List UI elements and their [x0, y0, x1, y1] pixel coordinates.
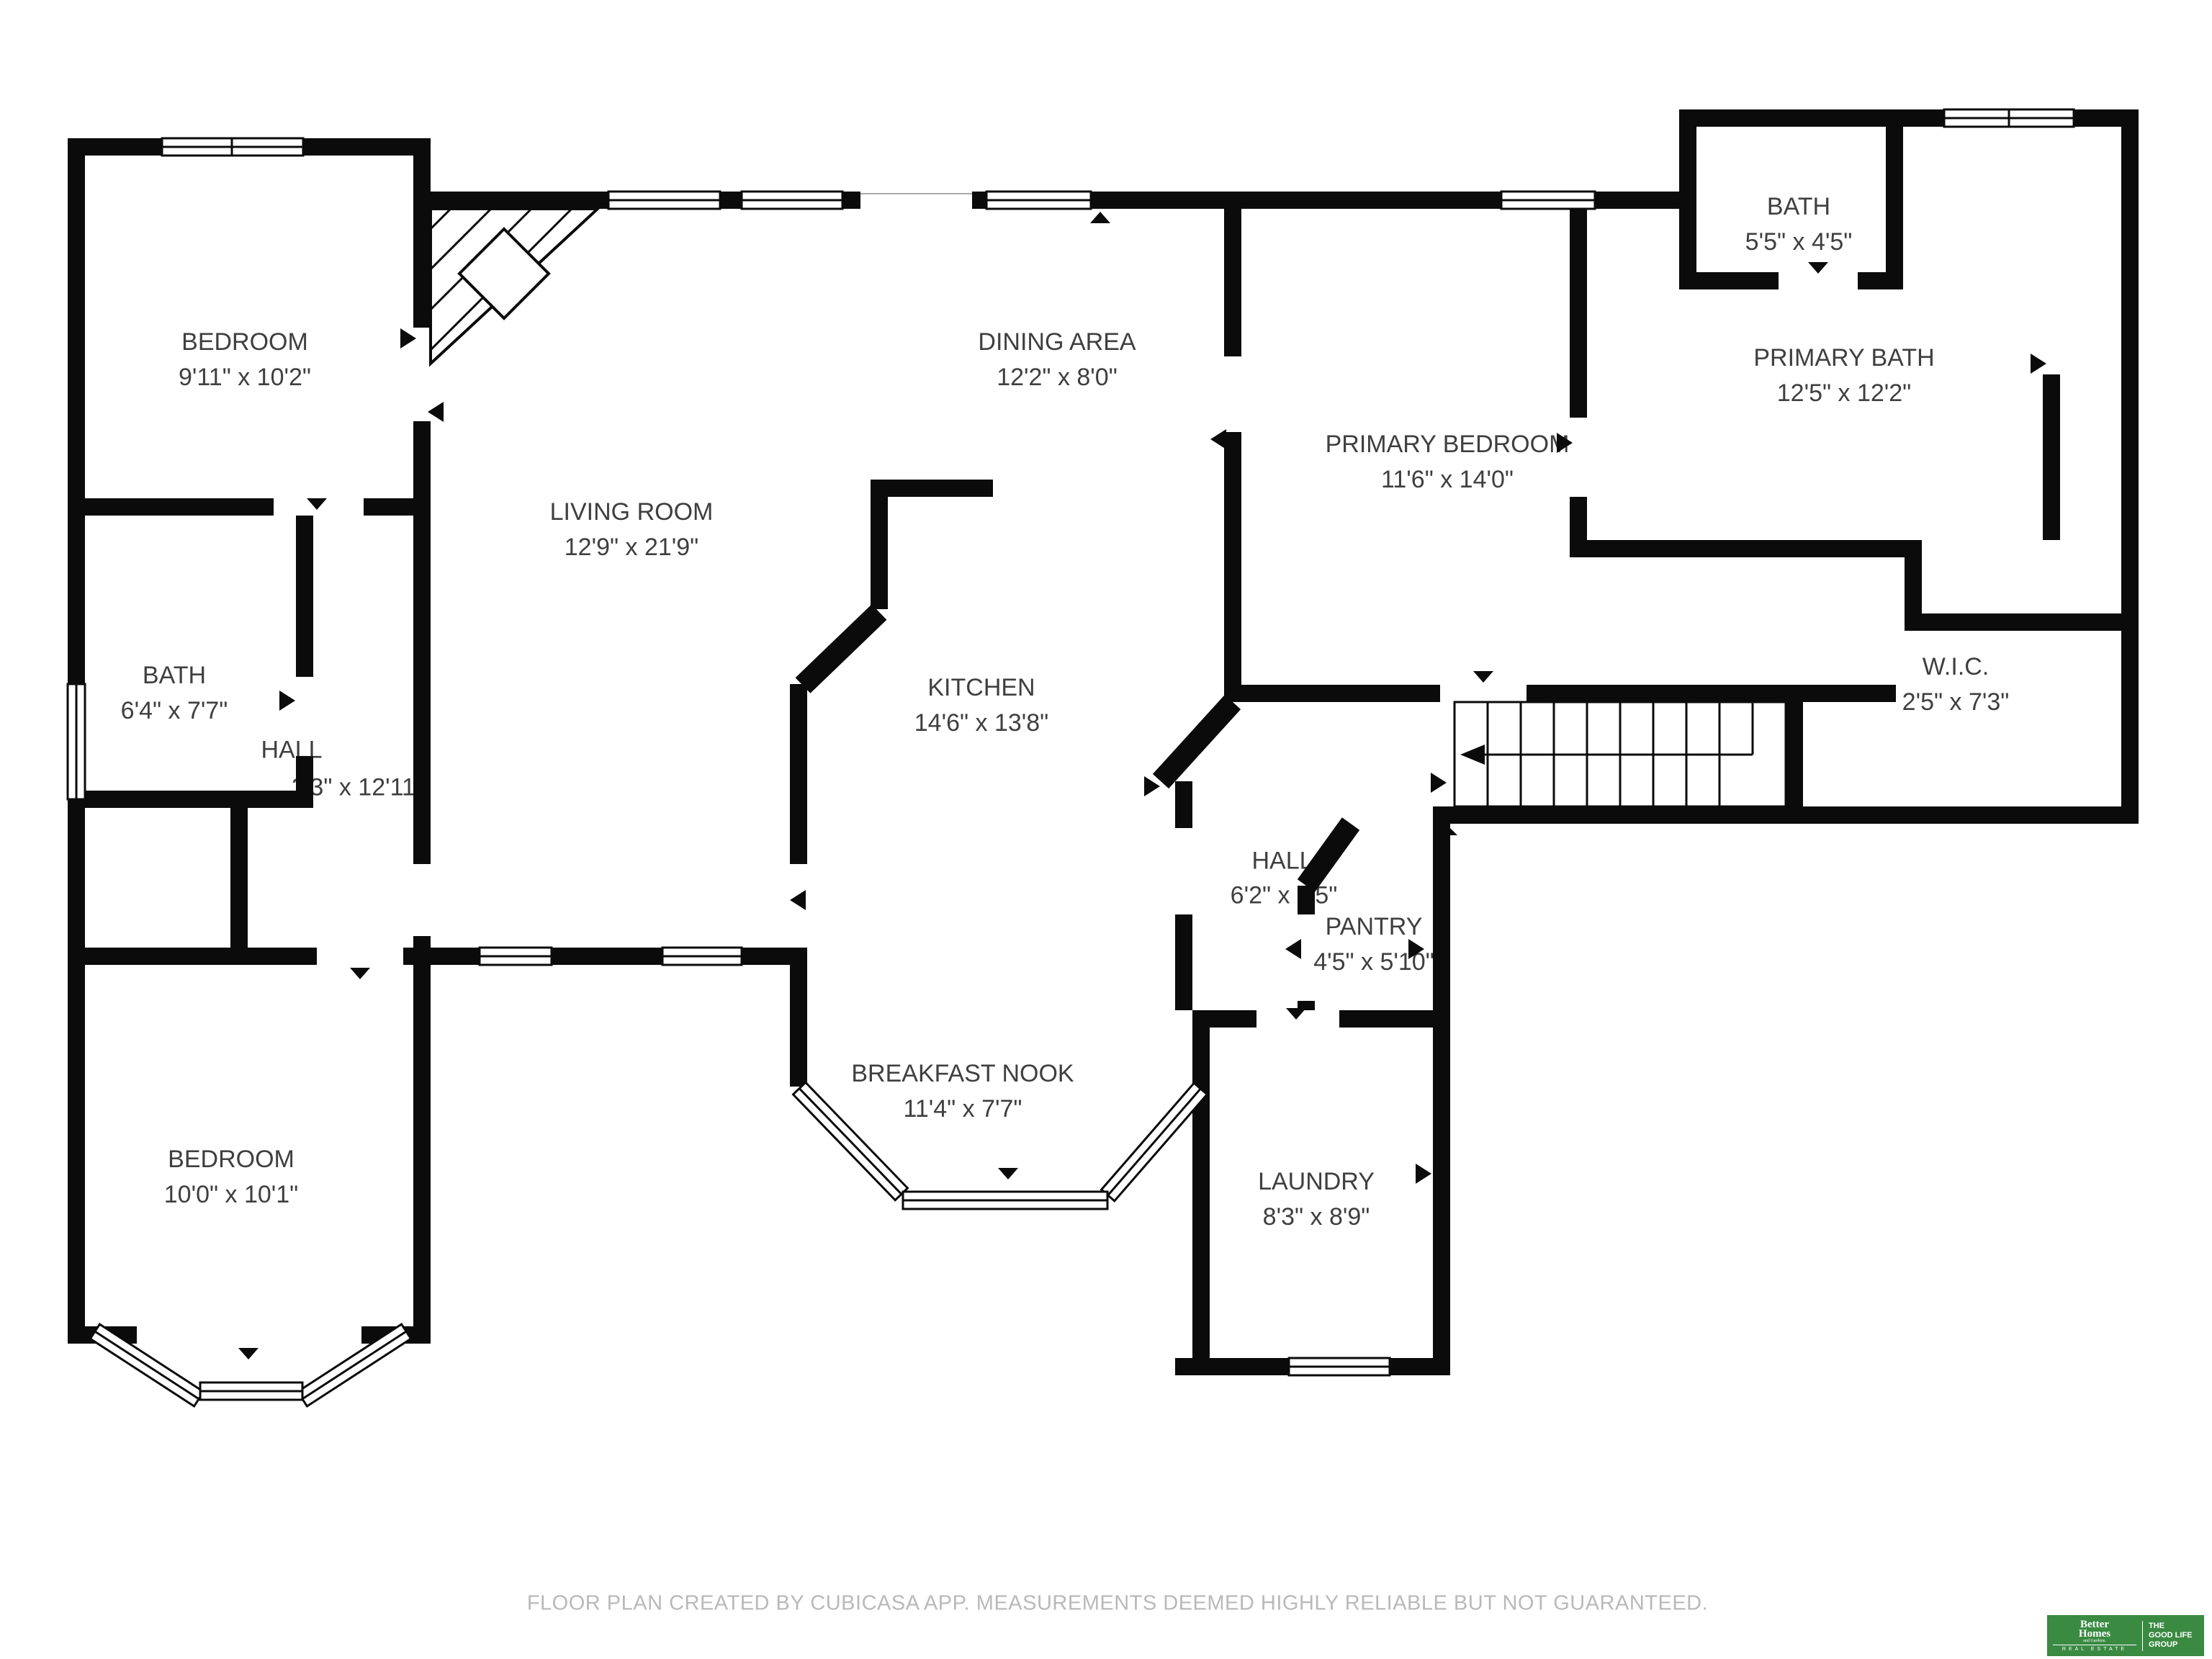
room-dims: 11'4" x 7'7" — [851, 1092, 1074, 1127]
room-label-primary-bath: PRIMARY BATH 12'5" x 12'2" — [1753, 341, 1934, 411]
windows — [68, 109, 2074, 1406]
group-line-1: THE — [2149, 1622, 2193, 1631]
room-label-pantry: PANTRY 4'5" x 5'10" — [1313, 909, 1434, 980]
room-name: KITCHEN — [914, 670, 1048, 706]
floorplan-drawing — [0, 0, 2212, 1659]
floorplan-page: BEDROOM 9'11" x 10'2" DINING AREA 12'2" … — [0, 0, 2212, 1659]
group-line-3: GROUP — [2149, 1640, 2193, 1650]
room-name-hall-left: HALL — [261, 737, 322, 765]
room-label-breakfast-nook: BREAKFAST NOOK 11'4" x 7'7" — [851, 1056, 1074, 1127]
room-dims: 12'2" x 8'0" — [978, 360, 1136, 395]
staircase-symbol — [1455, 702, 1786, 806]
room-name: PRIMARY BEDROOM — [1326, 427, 1570, 462]
room-dims: 12'9" x 21'9" — [550, 530, 714, 565]
fireplace-symbol — [431, 209, 612, 390]
room-label-bath-top: BATH 5'5" x 4'5" — [1745, 189, 1853, 260]
room-dims: 14'6" x 13'8" — [914, 706, 1048, 741]
room-name: BATH — [1745, 189, 1853, 225]
room-label-bedroom1: BEDROOM 9'11" x 10'2" — [179, 325, 311, 395]
room-name-hall-right: HALL — [1251, 848, 1313, 876]
room-dims: 2'5" x 7'3" — [1902, 685, 2010, 720]
room-name: LIVING ROOM — [550, 495, 714, 530]
room-dims: 12'5" x 12'2" — [1753, 376, 1934, 411]
room-label-primary-bedroom: PRIMARY BEDROOM 11'6" x 14'0" — [1326, 427, 1570, 498]
room-name: LAUNDRY — [1258, 1164, 1375, 1200]
room-dims-hall-right: 6'2" x 9'5" — [1231, 882, 1338, 910]
brand-name-mid: Homes — [2053, 1629, 2136, 1639]
room-name: DINING AREA — [978, 325, 1136, 360]
room-label-bedroom2: BEDROOM 10'0" x 10'1" — [164, 1142, 298, 1213]
room-label-living: LIVING ROOM 12'9" x 21'9" — [550, 495, 714, 565]
room-label-wic: W.I.C. 2'5" x 7'3" — [1902, 649, 2010, 720]
room-label-bath-left: BATH 6'4" x 7'7" — [121, 658, 228, 729]
logo-divider — [2142, 1621, 2143, 1651]
disclaimer-text: FLOOR PLAN CREATED BY CUBICASA APP. MEAS… — [527, 1592, 1708, 1616]
room-name: BEDROOM — [179, 325, 311, 360]
room-name: W.I.C. — [1902, 649, 2010, 685]
room-name: PRIMARY BATH — [1753, 341, 1934, 376]
room-name: BREAKFAST NOOK — [851, 1056, 1074, 1092]
brand-logo: Better Homes and Gardens. REAL ESTATE TH… — [2047, 1615, 2204, 1656]
room-dims: 5'5" x 4'5" — [1745, 225, 1853, 260]
room-dims: 11'6" x 14'0" — [1326, 462, 1570, 498]
room-label-laundry: LAUNDRY 8'3" x 8'9" — [1258, 1164, 1375, 1235]
diagonal-walls — [803, 612, 1351, 886]
room-dims-hall-left: 3'3" x 12'11" — [292, 774, 424, 802]
room-label-kitchen: KITCHEN 14'6" x 13'8" — [914, 670, 1048, 741]
room-name: BEDROOM — [164, 1142, 298, 1177]
brand-logo-left: Better Homes and Gardens. REAL ESTATE — [2047, 1620, 2136, 1652]
group-line-2: GOOD LIFE — [2149, 1631, 2193, 1640]
room-name: BATH — [121, 658, 228, 693]
brand-group-name: THE GOOD LIFE GROUP — [2149, 1622, 2193, 1650]
brand-name-sub: and Gardens. — [2053, 1639, 2136, 1643]
brand-real-estate: REAL ESTATE — [2053, 1645, 2136, 1652]
room-dims: 6'4" x 7'7" — [121, 693, 228, 729]
room-label-dining: DINING AREA 12'2" x 8'0" — [978, 325, 1136, 395]
room-dims: 9'11" x 10'2" — [179, 360, 311, 395]
room-dims: 4'5" x 5'10" — [1313, 945, 1434, 980]
room-dims: 10'0" x 10'1" — [164, 1177, 298, 1213]
walls — [68, 109, 2139, 1375]
room-dims: 8'3" x 8'9" — [1258, 1200, 1375, 1235]
room-name: PANTRY — [1313, 909, 1434, 945]
